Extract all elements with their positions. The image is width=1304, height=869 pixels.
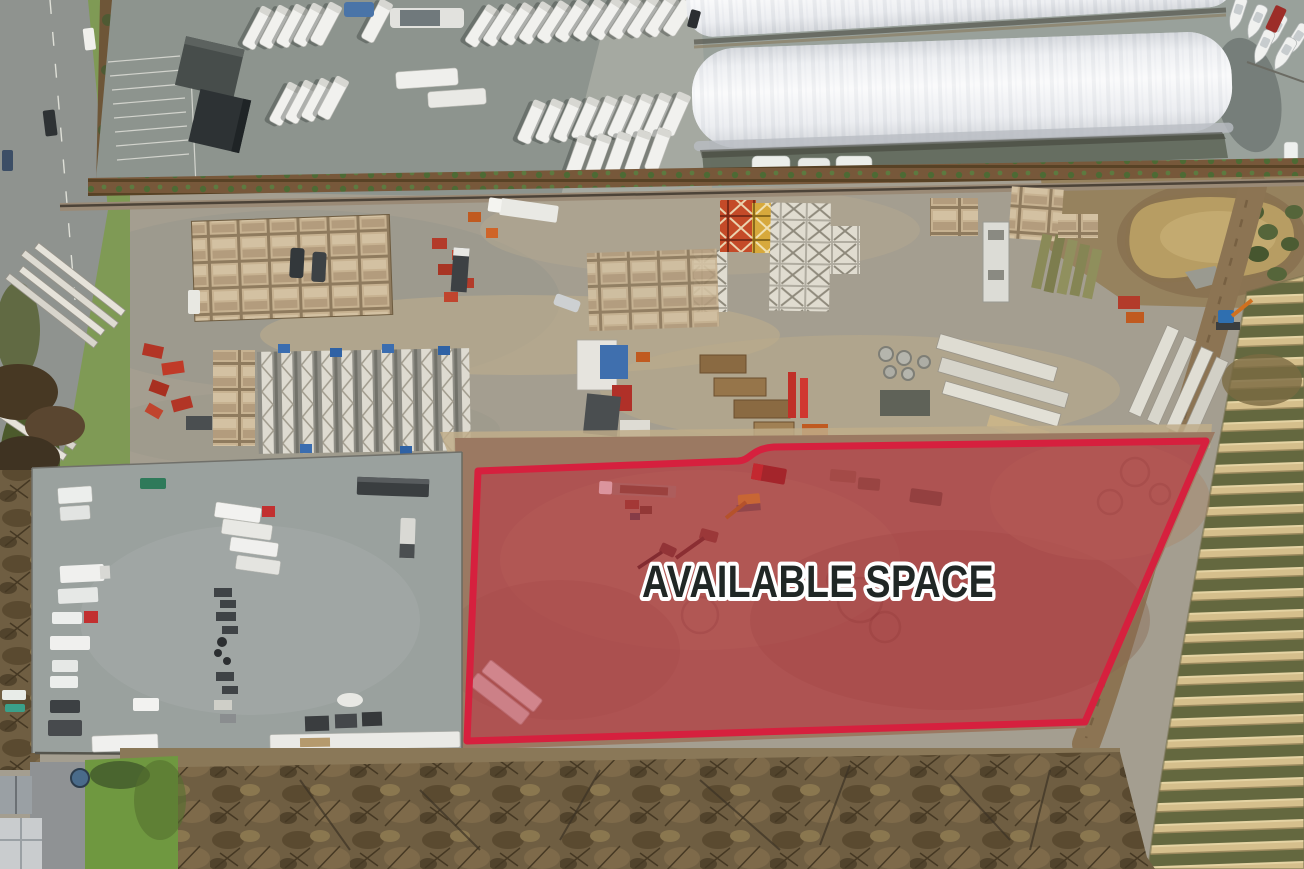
trampoline [71,769,89,787]
forest-brush [120,752,1150,869]
fabric-building-lower [690,31,1233,152]
lower-parking-lot [32,452,470,756]
aerial-site-photo: AVAILABLE SPACE [0,0,1304,869]
available-space-label: AVAILABLE SPACE [642,556,994,607]
aerial-yard-scene: AVAILABLE SPACE [0,0,1304,869]
